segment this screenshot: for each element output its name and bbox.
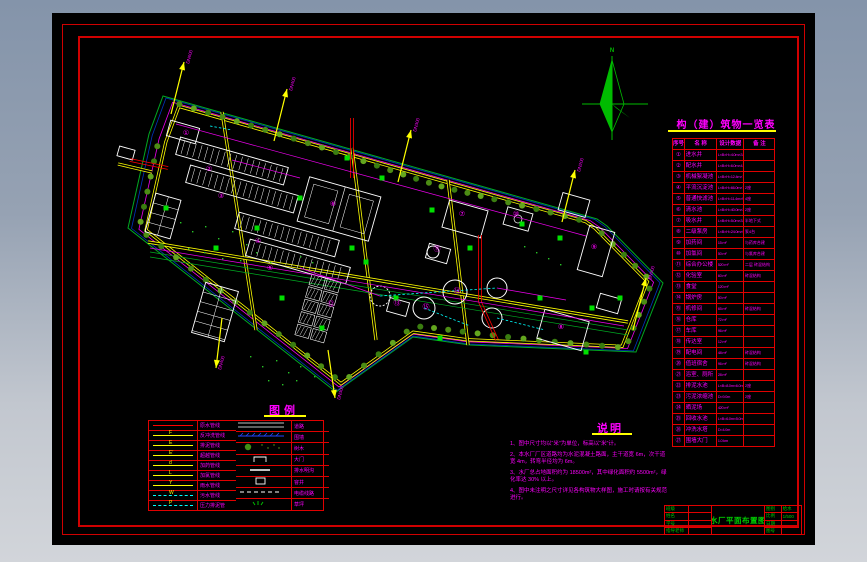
plan-shape xyxy=(464,190,470,196)
structure-table-cell: D=9.0m xyxy=(717,392,744,402)
plan-shape xyxy=(329,281,333,290)
plan-shape xyxy=(186,165,299,213)
plan-shape xyxy=(197,170,201,183)
building xyxy=(442,200,488,238)
drawing-title: 水厂平面布置图 xyxy=(712,506,765,534)
plan-shape xyxy=(340,194,373,234)
structure-table-cell: 96 m² xyxy=(717,326,744,336)
legend-symbol xyxy=(236,455,292,465)
plan-shape xyxy=(548,258,549,259)
plan-shape xyxy=(267,448,268,449)
structure-table-cell: ③ xyxy=(673,172,685,182)
plan-shape xyxy=(632,263,638,269)
legend-row: P压力排泥管 xyxy=(149,501,236,510)
structure-table-cell xyxy=(744,425,774,435)
plan-shape xyxy=(141,204,147,210)
plan-shape xyxy=(533,206,539,212)
plan-shape xyxy=(426,180,432,186)
structure-table-cell: 420 m² xyxy=(717,403,744,413)
plan-shape xyxy=(158,243,164,249)
legend-row: 排水明沟 xyxy=(236,466,329,477)
plan-shape xyxy=(254,457,266,462)
tb-left-row: 学号 xyxy=(665,521,711,528)
structure-table-cell: 二级泵房 xyxy=(685,227,717,237)
legend-label: 加氯管线 xyxy=(198,472,236,479)
structure-table-cell: 15 m² xyxy=(717,238,744,248)
legend-label: 雨水管线 xyxy=(198,482,236,489)
plan-shape xyxy=(417,324,423,330)
plan-shape xyxy=(286,252,290,265)
plan-shape xyxy=(138,219,144,225)
plan-shape xyxy=(505,199,511,205)
plan-shape xyxy=(311,289,315,298)
structure-table-cell: 120 m² xyxy=(717,282,744,292)
plan-shape xyxy=(198,145,202,158)
structure-table-row: ⑨加药间15 m²与药库合建 xyxy=(673,238,774,249)
legend-label: 树木 xyxy=(292,445,329,452)
structure-table-row: ①进水井L×B×H=4.0m×3.5m×4.5m xyxy=(673,150,774,161)
structure-number-label: ⑤ xyxy=(267,264,273,272)
structure-table: 序号名 称设计数据备 注①进水井L×B×H=4.0m×3.5m×4.5m②配水井… xyxy=(672,138,775,447)
pipe-arrow-label: DN500 xyxy=(647,265,656,280)
structure-table-cell: ㉑ xyxy=(673,370,685,380)
tb-right-row: 日期 xyxy=(765,521,799,528)
structure-table-cell: 520 m² xyxy=(717,260,744,270)
plan-shape xyxy=(273,445,274,446)
tb-left-label: 姓名 xyxy=(665,513,689,519)
plan-shape xyxy=(245,444,251,450)
legend-row: 树木 xyxy=(236,443,329,454)
plan-shape xyxy=(214,246,219,251)
plan-shape xyxy=(263,222,267,235)
plan-shape xyxy=(590,306,595,311)
structure-table-row: ③机械絮凝池L×B×H=12.4m×7.8m×4.6m xyxy=(673,172,774,183)
legend-label: 反冲洗管线 xyxy=(198,432,236,439)
pipe-arrow-label: DN300 xyxy=(336,385,345,400)
plan-shape xyxy=(304,353,310,359)
structure-table-cell: 砖混结构 xyxy=(744,348,774,358)
legend-row: 电缆线路 xyxy=(236,488,329,499)
plan-shape xyxy=(246,244,247,245)
legend-symbol xyxy=(236,432,292,442)
structure-table-cell: ⑧ xyxy=(673,227,685,237)
tb-right-label: 图号 xyxy=(765,528,782,534)
plan-shape xyxy=(286,229,290,242)
tb-left-label: 指导老师 xyxy=(665,528,689,534)
legend-symbol: E xyxy=(149,441,198,450)
structure-table-cell: ㉕ xyxy=(673,414,685,424)
plan-shape xyxy=(478,193,484,199)
plan-shape xyxy=(268,380,269,381)
plan-shape xyxy=(218,238,219,239)
structure-table-cell xyxy=(744,282,774,292)
tb-left-value xyxy=(689,521,711,527)
structure-number-label: ① xyxy=(183,129,189,137)
structure-table-cell: ⑩ xyxy=(673,249,685,259)
structure-table-cell: ④ xyxy=(673,183,685,193)
plan-shape xyxy=(300,256,301,257)
structure-table-row: ㉗围墙大门1.0 km xyxy=(673,436,774,447)
legend-row: 原水管线 xyxy=(149,421,236,431)
plan-shape xyxy=(276,331,282,337)
plan-shape xyxy=(304,233,308,246)
structure-table-cell: ② xyxy=(673,161,685,171)
tb-right-value: 给水 xyxy=(782,506,799,512)
structure-table-cell: ⑱ xyxy=(673,337,685,347)
plan-shape xyxy=(303,314,307,323)
legend-label: 原水管线 xyxy=(198,422,236,429)
plan-shape xyxy=(208,173,212,186)
legend-row: Y雨水管线 xyxy=(149,481,236,491)
plan-shape xyxy=(560,264,561,265)
building xyxy=(577,225,615,276)
plan-shape xyxy=(255,226,260,231)
structure-table-cell: 配电间 xyxy=(685,348,717,358)
plan-shape xyxy=(321,238,325,251)
plan-shape xyxy=(243,183,247,196)
note-item: 3、水厂总占地面积约为 18500m²，其中绿化面积约 5500m²，绿化率达 … xyxy=(510,470,668,485)
plan-shape xyxy=(300,366,301,367)
legend-symbol: Y xyxy=(149,481,198,490)
pipes-layer xyxy=(130,118,624,341)
pipe-arrow-label: DN200 xyxy=(576,157,585,172)
plan-shape xyxy=(612,104,630,118)
plan-labels-layer: ①②③④⑤⑥⑦⑧⑨⑩⑪⑫⑬⑭⑮ xyxy=(183,129,597,331)
plan-shape xyxy=(198,311,231,320)
structure-table-row: ㉓污泥浓缩池D=9.0m2座 xyxy=(673,392,774,403)
plan-shape xyxy=(505,334,511,340)
legend-row: F反冲洗管线 xyxy=(149,431,236,441)
structure-table-cell xyxy=(744,150,774,160)
plan-shape xyxy=(150,212,175,219)
pipe-arrow-label: DN300 xyxy=(412,117,421,132)
legend-symbol xyxy=(149,421,198,430)
structure-number-label: ③ xyxy=(218,192,224,200)
plan-shape xyxy=(352,148,376,340)
plan-shape xyxy=(618,296,623,301)
plan-shape xyxy=(497,288,566,300)
plan-shape xyxy=(204,252,205,253)
plan-shape xyxy=(345,156,350,161)
legend-row: E′超越管线 xyxy=(149,451,236,461)
plan-shape xyxy=(438,336,443,341)
legend-pipe-code: W xyxy=(169,490,174,496)
plan-shape xyxy=(222,258,223,259)
plan-shape xyxy=(234,118,240,124)
pipe-arrow-label: DN400 xyxy=(217,355,226,370)
plan-shape xyxy=(274,249,278,262)
plan-shape xyxy=(404,329,410,335)
plan-shape xyxy=(256,162,260,175)
plan-shape xyxy=(298,232,302,245)
boundary-layer xyxy=(128,96,663,392)
plan-shape xyxy=(148,242,628,322)
plan-shape xyxy=(538,296,543,301)
plan-shape xyxy=(153,505,193,506)
tb-left-row: 姓名 xyxy=(665,513,711,520)
legend-symbol: L xyxy=(149,471,198,480)
legend-row: W污水管线 xyxy=(149,491,236,501)
structure-table-row: ⑦吸水井L×B×H=5.0m×3.0m×5.0m半地下式 xyxy=(673,216,774,227)
plan-shape xyxy=(288,372,289,373)
plan-shape xyxy=(262,163,266,176)
structure-table-cell: 吸水井 xyxy=(685,216,717,226)
legend-label: 污水管线 xyxy=(198,492,236,499)
plan-shape: 图别给水比例1/500日期图号 xyxy=(765,506,799,534)
structure-table-row: ⑥清水池L×B×H=40.0m×30.0m×4.0m2座 xyxy=(673,205,774,216)
plan-shape xyxy=(305,287,321,301)
plan-shape xyxy=(235,212,340,257)
plan-shape xyxy=(320,326,325,331)
plan-shape xyxy=(460,329,466,335)
legend-symbol: d xyxy=(149,461,198,470)
plan-shape xyxy=(290,342,296,348)
plan-shape xyxy=(277,131,283,137)
structure-table-cell: ⑲ xyxy=(673,348,685,358)
structure-number-label: ⑧ xyxy=(558,323,564,331)
legend-pipe-code: L xyxy=(169,470,172,476)
plan-shape xyxy=(250,160,254,173)
structure-table-cell: 加药间 xyxy=(685,238,717,248)
structure-table-row: ②配水井L×B×H=6.0m×4.0m×4.2m xyxy=(673,161,774,172)
plan-shape xyxy=(248,123,254,129)
plan-shape xyxy=(282,384,283,385)
plan-shape xyxy=(390,340,396,346)
structure-table-cell: 二层 砖混结构 xyxy=(744,260,774,270)
legend-row: 大门 xyxy=(236,455,329,466)
plan-shape xyxy=(283,195,287,208)
structure-table-row: ⑫化验室60 m²砖混结构 xyxy=(673,271,774,282)
plan-shape xyxy=(298,312,314,326)
structure-table-cell: ㉗ xyxy=(673,436,685,446)
legend-symbol xyxy=(236,421,292,431)
drawing-sheet: DN600DN400DN300DN200DN500DN400DN300①②③④⑤… xyxy=(52,13,815,545)
structure-table-cell: 化验室 xyxy=(685,271,717,281)
structure-table-cell: L×B×H=6.0m×4.0m×4.2m xyxy=(717,161,744,171)
plan-shape xyxy=(273,167,277,180)
tb-right-value xyxy=(782,528,799,534)
structure-table-header-row: 序号名 称设计数据备 注 xyxy=(673,139,774,150)
plan-shape xyxy=(319,332,323,341)
tb-right-value: 1/500 xyxy=(782,513,799,519)
plan-shape xyxy=(583,342,589,348)
structure-table-cell xyxy=(744,293,774,303)
plan-shape xyxy=(646,286,652,292)
plan-shape xyxy=(364,260,369,265)
plan-shape xyxy=(226,178,230,191)
plan-shape xyxy=(148,222,173,229)
legend-label: 草坪 xyxy=(292,501,329,508)
legend-symbol xyxy=(236,466,292,476)
plan-shape xyxy=(255,186,259,199)
structure-table-cell xyxy=(744,172,774,182)
plan-shape xyxy=(220,114,226,120)
structure-table-cell: ⑥ xyxy=(673,205,685,215)
structure-table-row: ④平流沉淀池L×B×H=66.0m×7.8m×3.8m2座 xyxy=(673,183,774,194)
tb-right-row: 图号 xyxy=(765,528,799,534)
plan-shape xyxy=(203,172,207,185)
plan-shape xyxy=(153,425,193,426)
building xyxy=(186,165,299,213)
structure-table-cell: 机修间 xyxy=(685,304,717,314)
plan-shape xyxy=(327,240,331,253)
structure-table-cell: L×B×H=12.4m×7.8m×4.6m xyxy=(717,172,744,182)
structure-table-row: ⑲配电间48 m²砖混结构 xyxy=(673,348,774,359)
structure-number-label: ⑭ xyxy=(454,287,461,295)
plan-shape xyxy=(153,435,193,436)
structure-table-cell: 50 m² xyxy=(717,293,744,303)
tanks-layer xyxy=(370,246,507,328)
plan-shape xyxy=(292,230,296,243)
plan-shape: 班级姓名学号指导老师 xyxy=(665,506,712,534)
plan-shape xyxy=(216,150,220,163)
plan-shape xyxy=(289,196,293,209)
structure-table-row: ⑭锅炉房50 m² xyxy=(673,293,774,304)
plan-shape xyxy=(272,191,276,204)
structure-table-cell: ⑳ xyxy=(673,359,685,369)
structure-table-cell: L×B×H=24.0m×9.0m×6.0m xyxy=(717,227,744,237)
plan-shape xyxy=(326,264,330,277)
plan-shape xyxy=(187,142,191,155)
plan-shape xyxy=(400,172,406,178)
plan-shape xyxy=(615,344,621,350)
plan-shape xyxy=(295,324,311,338)
legend-label: 排泥管线 xyxy=(198,442,236,449)
plan-shape xyxy=(577,225,615,276)
plan-shape xyxy=(310,302,314,311)
plan-shape xyxy=(307,301,311,310)
trees-layer xyxy=(138,101,653,380)
structure-table-cell: ㉓ xyxy=(673,392,685,402)
plan-shape xyxy=(261,445,262,446)
plan-shape xyxy=(262,127,268,133)
legend-row: 窨井 xyxy=(236,477,329,488)
legend-symbol xyxy=(236,488,292,498)
structure-table-cell: 65 m² xyxy=(717,304,744,314)
structure-table-cell xyxy=(744,337,774,347)
plan-shape xyxy=(278,448,279,449)
plan-shape xyxy=(262,366,263,367)
legend-symbol xyxy=(236,477,292,487)
plan-shape xyxy=(236,421,286,429)
structure-table-cell: 配水井 xyxy=(685,161,717,171)
structure-table-row: ㉔晒泥场420 m² xyxy=(673,403,774,414)
plan-shape xyxy=(296,380,297,381)
structure-number-label: ⑦ xyxy=(459,210,465,218)
structure-table-cell: 砖混结构 xyxy=(744,359,774,369)
plan-shape xyxy=(220,177,224,190)
structure-table-cell: 与氯库合建 xyxy=(744,249,774,259)
plan-shape xyxy=(278,193,282,206)
structure-table-cell: 仓库 xyxy=(685,315,717,325)
structure-table-cell: ⑬ xyxy=(673,282,685,292)
tb-left-label: 班级 xyxy=(665,506,689,512)
plan-shape xyxy=(232,231,233,232)
plan-shape xyxy=(200,302,233,311)
structure-table-cell: 96 m² xyxy=(717,359,744,369)
structure-table-cell: ⑯ xyxy=(673,315,685,325)
structure-table-cell: 2座 xyxy=(744,381,774,391)
structure-table-cell: 60 m² xyxy=(717,271,744,281)
plan-shape xyxy=(491,196,497,202)
plan-shape xyxy=(237,181,241,194)
structure-table-row: ㉑浴室、厕所28 m² xyxy=(673,370,774,381)
plan-shape xyxy=(431,325,437,331)
note-item: 1、图中尺寸均以“米”为单位，标高以“米”计。 xyxy=(510,441,668,449)
structure-table-cell: 12 m² xyxy=(717,337,744,347)
plan-shape xyxy=(239,157,243,170)
plan-shape xyxy=(144,189,150,195)
structure-table-cell xyxy=(744,414,774,424)
structure-table-cell: 食堂 xyxy=(685,282,717,292)
legend-label: 道路 xyxy=(292,423,329,430)
plan-shape xyxy=(350,246,355,251)
plan-shape xyxy=(445,327,451,333)
pipe-arrow-label: DN600 xyxy=(185,49,194,64)
plan-shape xyxy=(302,299,318,313)
plan-shape xyxy=(256,252,257,253)
plan-shape xyxy=(263,246,267,259)
structure-table-header: 名 称 xyxy=(685,139,717,149)
plan-shape xyxy=(361,363,367,369)
structure-table-cell: 砖混结构 xyxy=(744,304,774,314)
structure-table-row: ⑬食堂120 m² xyxy=(673,282,774,293)
plan-shape xyxy=(236,443,286,451)
plan-shape xyxy=(314,290,318,299)
structure-table-cell: 半地下式 xyxy=(744,216,774,226)
legend-label: 超越管线 xyxy=(198,452,236,459)
plan-shape xyxy=(439,183,445,189)
plan-shape xyxy=(191,168,195,181)
structure-number-label: ④ xyxy=(255,237,261,245)
structure-table-underline xyxy=(668,130,776,132)
structure-table-cell: D=4.0m xyxy=(717,425,744,435)
plan-shape xyxy=(279,168,283,181)
structure-number-label: ⑩ xyxy=(513,210,519,218)
plan-shape xyxy=(245,158,249,171)
plan-shape xyxy=(246,217,250,230)
legend-underline xyxy=(264,415,306,417)
tb-right-row: 图别给水 xyxy=(765,506,799,513)
plan-shape xyxy=(236,466,286,474)
plan-shape xyxy=(318,363,324,369)
structure-table-cell: 72 m² xyxy=(717,315,744,325)
plan-shape xyxy=(536,252,537,253)
legend-row: 道路 xyxy=(236,421,329,432)
plan-shape xyxy=(236,455,286,463)
structure-table-cell: ㉖ xyxy=(673,425,685,435)
plan-shape xyxy=(250,356,251,357)
structure-table-cell xyxy=(744,315,774,325)
plan-shape xyxy=(205,226,206,227)
structure-table-cell: ⑭ xyxy=(673,293,685,303)
plan-shape xyxy=(210,126,232,130)
legend-symbol: P xyxy=(149,501,198,510)
plan-shape xyxy=(599,343,605,349)
plan-shape xyxy=(319,145,325,151)
structure-table-row: ⑧二级泵房L×B×H=24.0m×9.0m×6.0m泵4台 xyxy=(673,227,774,238)
structure-number-label: ⑪ xyxy=(434,245,441,253)
plan-shape xyxy=(497,318,545,330)
plan-shape xyxy=(558,236,563,241)
plan-shape xyxy=(291,136,297,142)
plan-shape xyxy=(249,185,253,198)
structure-table-cell: ⑫ xyxy=(673,271,685,281)
plan-shape xyxy=(312,262,313,263)
structure-table-cell xyxy=(744,436,774,446)
plan-shape xyxy=(270,262,271,263)
structure-table-cell: 围墙大门 xyxy=(685,436,717,446)
